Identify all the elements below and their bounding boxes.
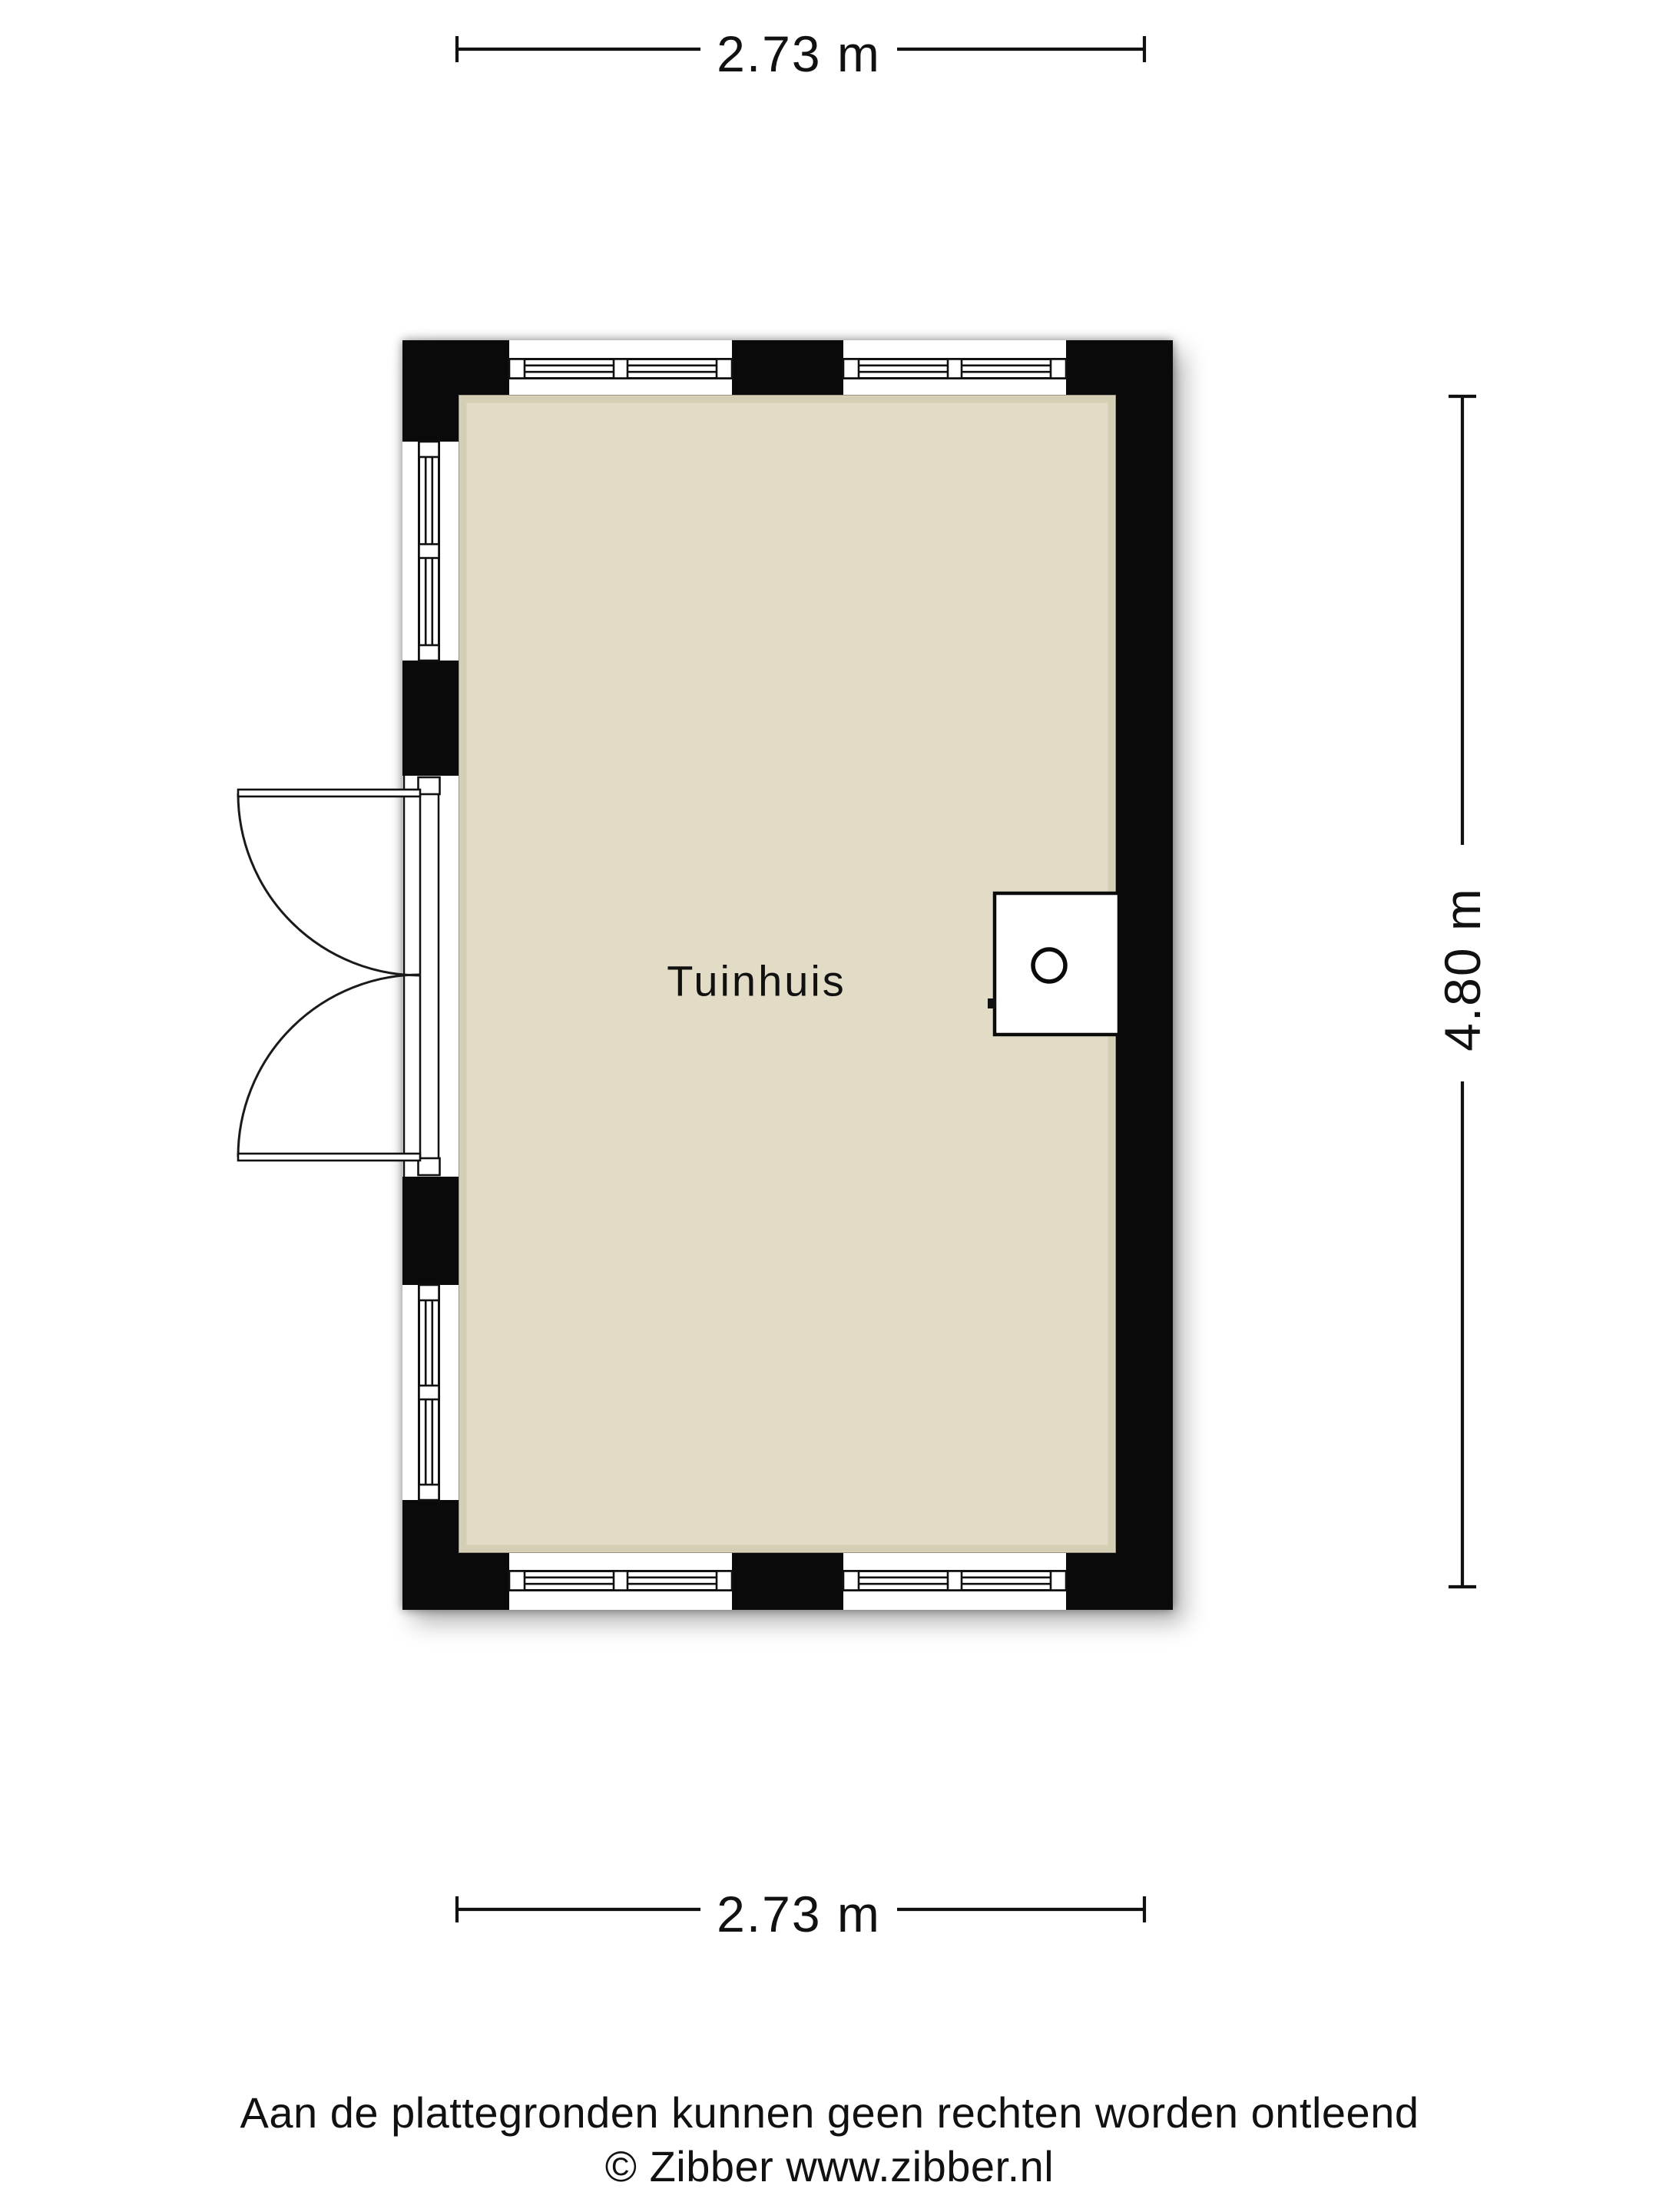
right-wall xyxy=(1116,340,1173,1610)
stove-symbol xyxy=(988,893,1119,1035)
window-symbol-top-2 xyxy=(843,359,1066,379)
dimension-bottom-label: 2.73 m xyxy=(717,1885,881,1943)
door-jamb-top xyxy=(419,777,440,794)
floorplan xyxy=(0,0,1659,2212)
window-symbol-bottom-1 xyxy=(509,1571,732,1591)
bottom-wall-segment-3 xyxy=(1066,1553,1173,1610)
door-swing-arc-top xyxy=(238,793,420,975)
window-symbol-top-1 xyxy=(509,359,732,379)
top-wall-segment-3 xyxy=(1066,340,1173,395)
window-symbol-bottom-2 xyxy=(843,1571,1066,1591)
dimension-top-label: 2.73 m xyxy=(717,25,881,83)
left-wall-segment-3 xyxy=(402,1177,459,1285)
stove-knob xyxy=(988,998,996,1008)
room-label: Tuinhuis xyxy=(667,956,846,1006)
stove-burner-circle xyxy=(1033,949,1065,982)
left-wall-segment-2 xyxy=(402,661,459,776)
page: 2.73 m 4.80 m 2.73 m Tuinhuis Aan de pla… xyxy=(0,0,1659,2212)
bottom-wall-segment-2 xyxy=(732,1553,843,1610)
door-leaf-top xyxy=(238,790,420,796)
footer-copyright: © Zibber www.zibber.nl xyxy=(0,2141,1659,2191)
left-wall-segment-1 xyxy=(402,340,459,442)
footer-disclaimer: Aan de plattegronden kunnen geen rechten… xyxy=(0,2088,1659,2137)
dimension-right-label: 4.80 m xyxy=(1433,887,1492,1051)
door-leaf-bottom xyxy=(238,1154,420,1161)
window-symbol-left-1 xyxy=(419,442,439,661)
top-wall-segment-2 xyxy=(732,340,843,395)
window-symbol-left-2 xyxy=(419,1285,439,1500)
door-swing-arc-bottom xyxy=(238,975,420,1157)
door-jamb-bottom xyxy=(419,1158,440,1175)
left-wall-segment-4 xyxy=(402,1500,459,1610)
